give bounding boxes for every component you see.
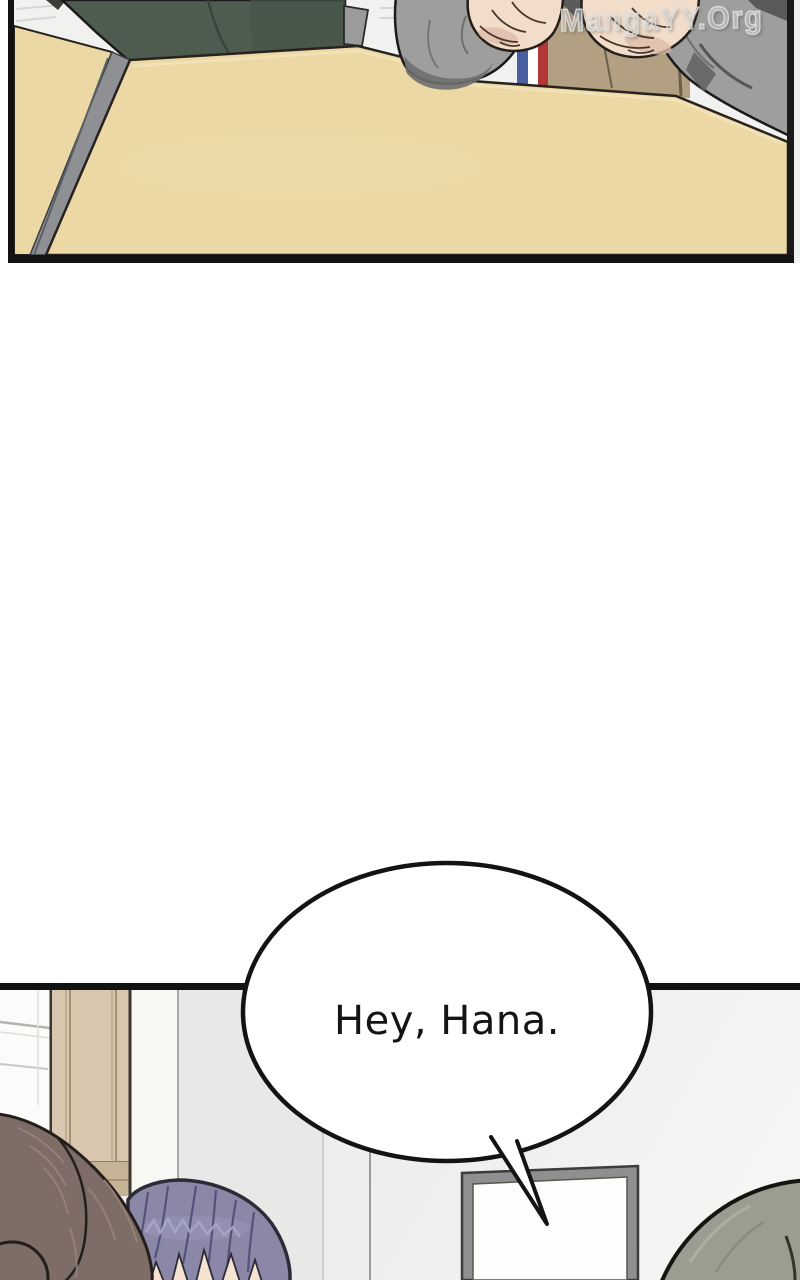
speech-bubble-text: Hey, Hana. bbox=[247, 873, 647, 1159]
site-watermark: MangaYY.Org bbox=[560, 0, 800, 56]
whiteboard bbox=[462, 1166, 638, 1280]
webtoon-page: MangaYY.Org Hey, Hana. bbox=[0, 0, 800, 1280]
